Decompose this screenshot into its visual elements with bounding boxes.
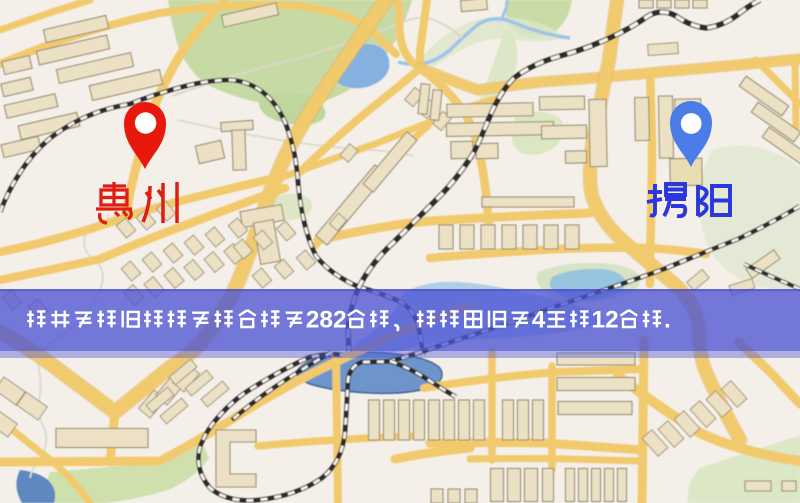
svg-text:282: 282 <box>306 307 347 334</box>
svg-text:12: 12 <box>591 307 618 334</box>
svg-text:4: 4 <box>532 307 546 334</box>
svg-text:.: . <box>664 307 671 334</box>
